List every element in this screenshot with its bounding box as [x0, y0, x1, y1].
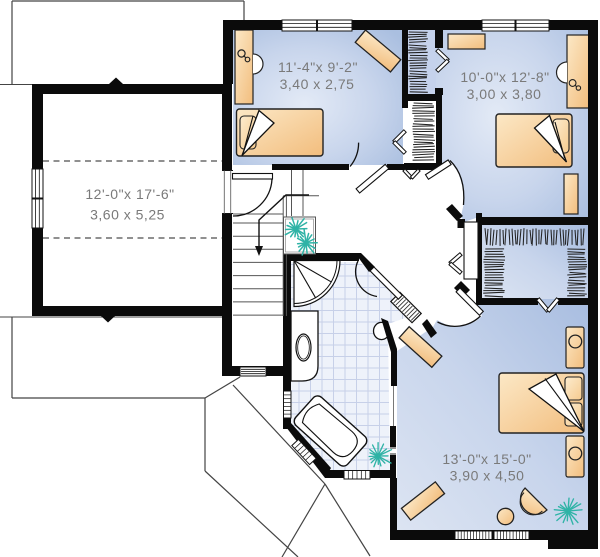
- svg-text:3,00 x 3,80: 3,00 x 3,80: [467, 86, 542, 102]
- svg-text:10'-0"x 12'-8": 10'-0"x 12'-8": [460, 69, 549, 85]
- svg-text:13'-0"x 15'-0": 13'-0"x 15'-0": [442, 451, 531, 467]
- svg-text:12'-0"x 17'-6": 12'-0"x 17'-6": [85, 186, 174, 202]
- svg-text:3,60 x 5,25: 3,60 x 5,25: [90, 207, 165, 223]
- svg-text:3,40 x 2,75: 3,40 x 2,75: [280, 76, 355, 92]
- svg-text:11'-4"x 9'-2": 11'-4"x 9'-2": [278, 59, 358, 75]
- svg-text:3,90 x 4,50: 3,90 x 4,50: [450, 468, 525, 484]
